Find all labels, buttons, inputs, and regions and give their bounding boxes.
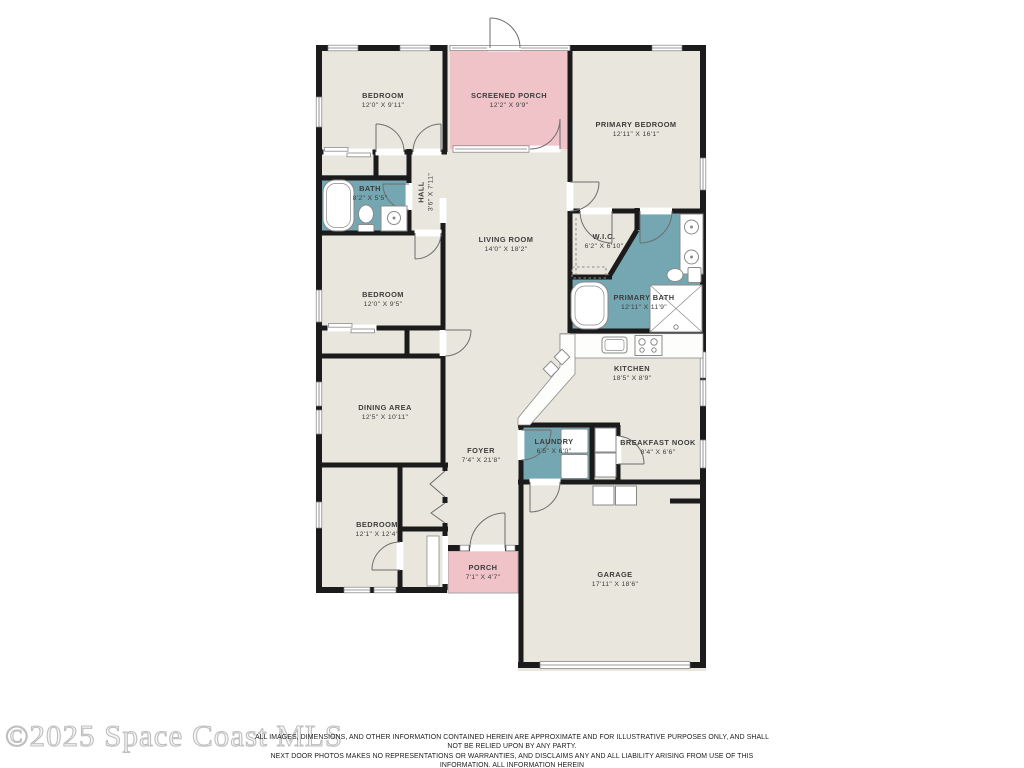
- washer: [561, 429, 588, 453]
- stove: [635, 336, 662, 356]
- dryer: [561, 455, 588, 479]
- kitchen-counter: [560, 334, 703, 358]
- toilet: [667, 269, 683, 282]
- floor-plan-drawing: [314, 0, 708, 674]
- toilet: [359, 205, 374, 223]
- disclaimer-text: ALL IMAGES, DIMENSIONS, AND OTHER INFORM…: [251, 733, 773, 768]
- floor-plan-page: BEDROOM12'0" X 9'11" SCREENED PORCH12'2"…: [0, 0, 1024, 768]
- floor-plan: BEDROOM12'0" X 9'11" SCREENED PORCH12'2"…: [314, 24, 708, 674]
- disclaimer-line-2: NEXT DOOR PHOTOS MAKES NO REPRESENTATION…: [251, 752, 773, 768]
- disclaimer-line-1: ALL IMAGES, DIMENSIONS, AND OTHER INFORM…: [251, 733, 773, 752]
